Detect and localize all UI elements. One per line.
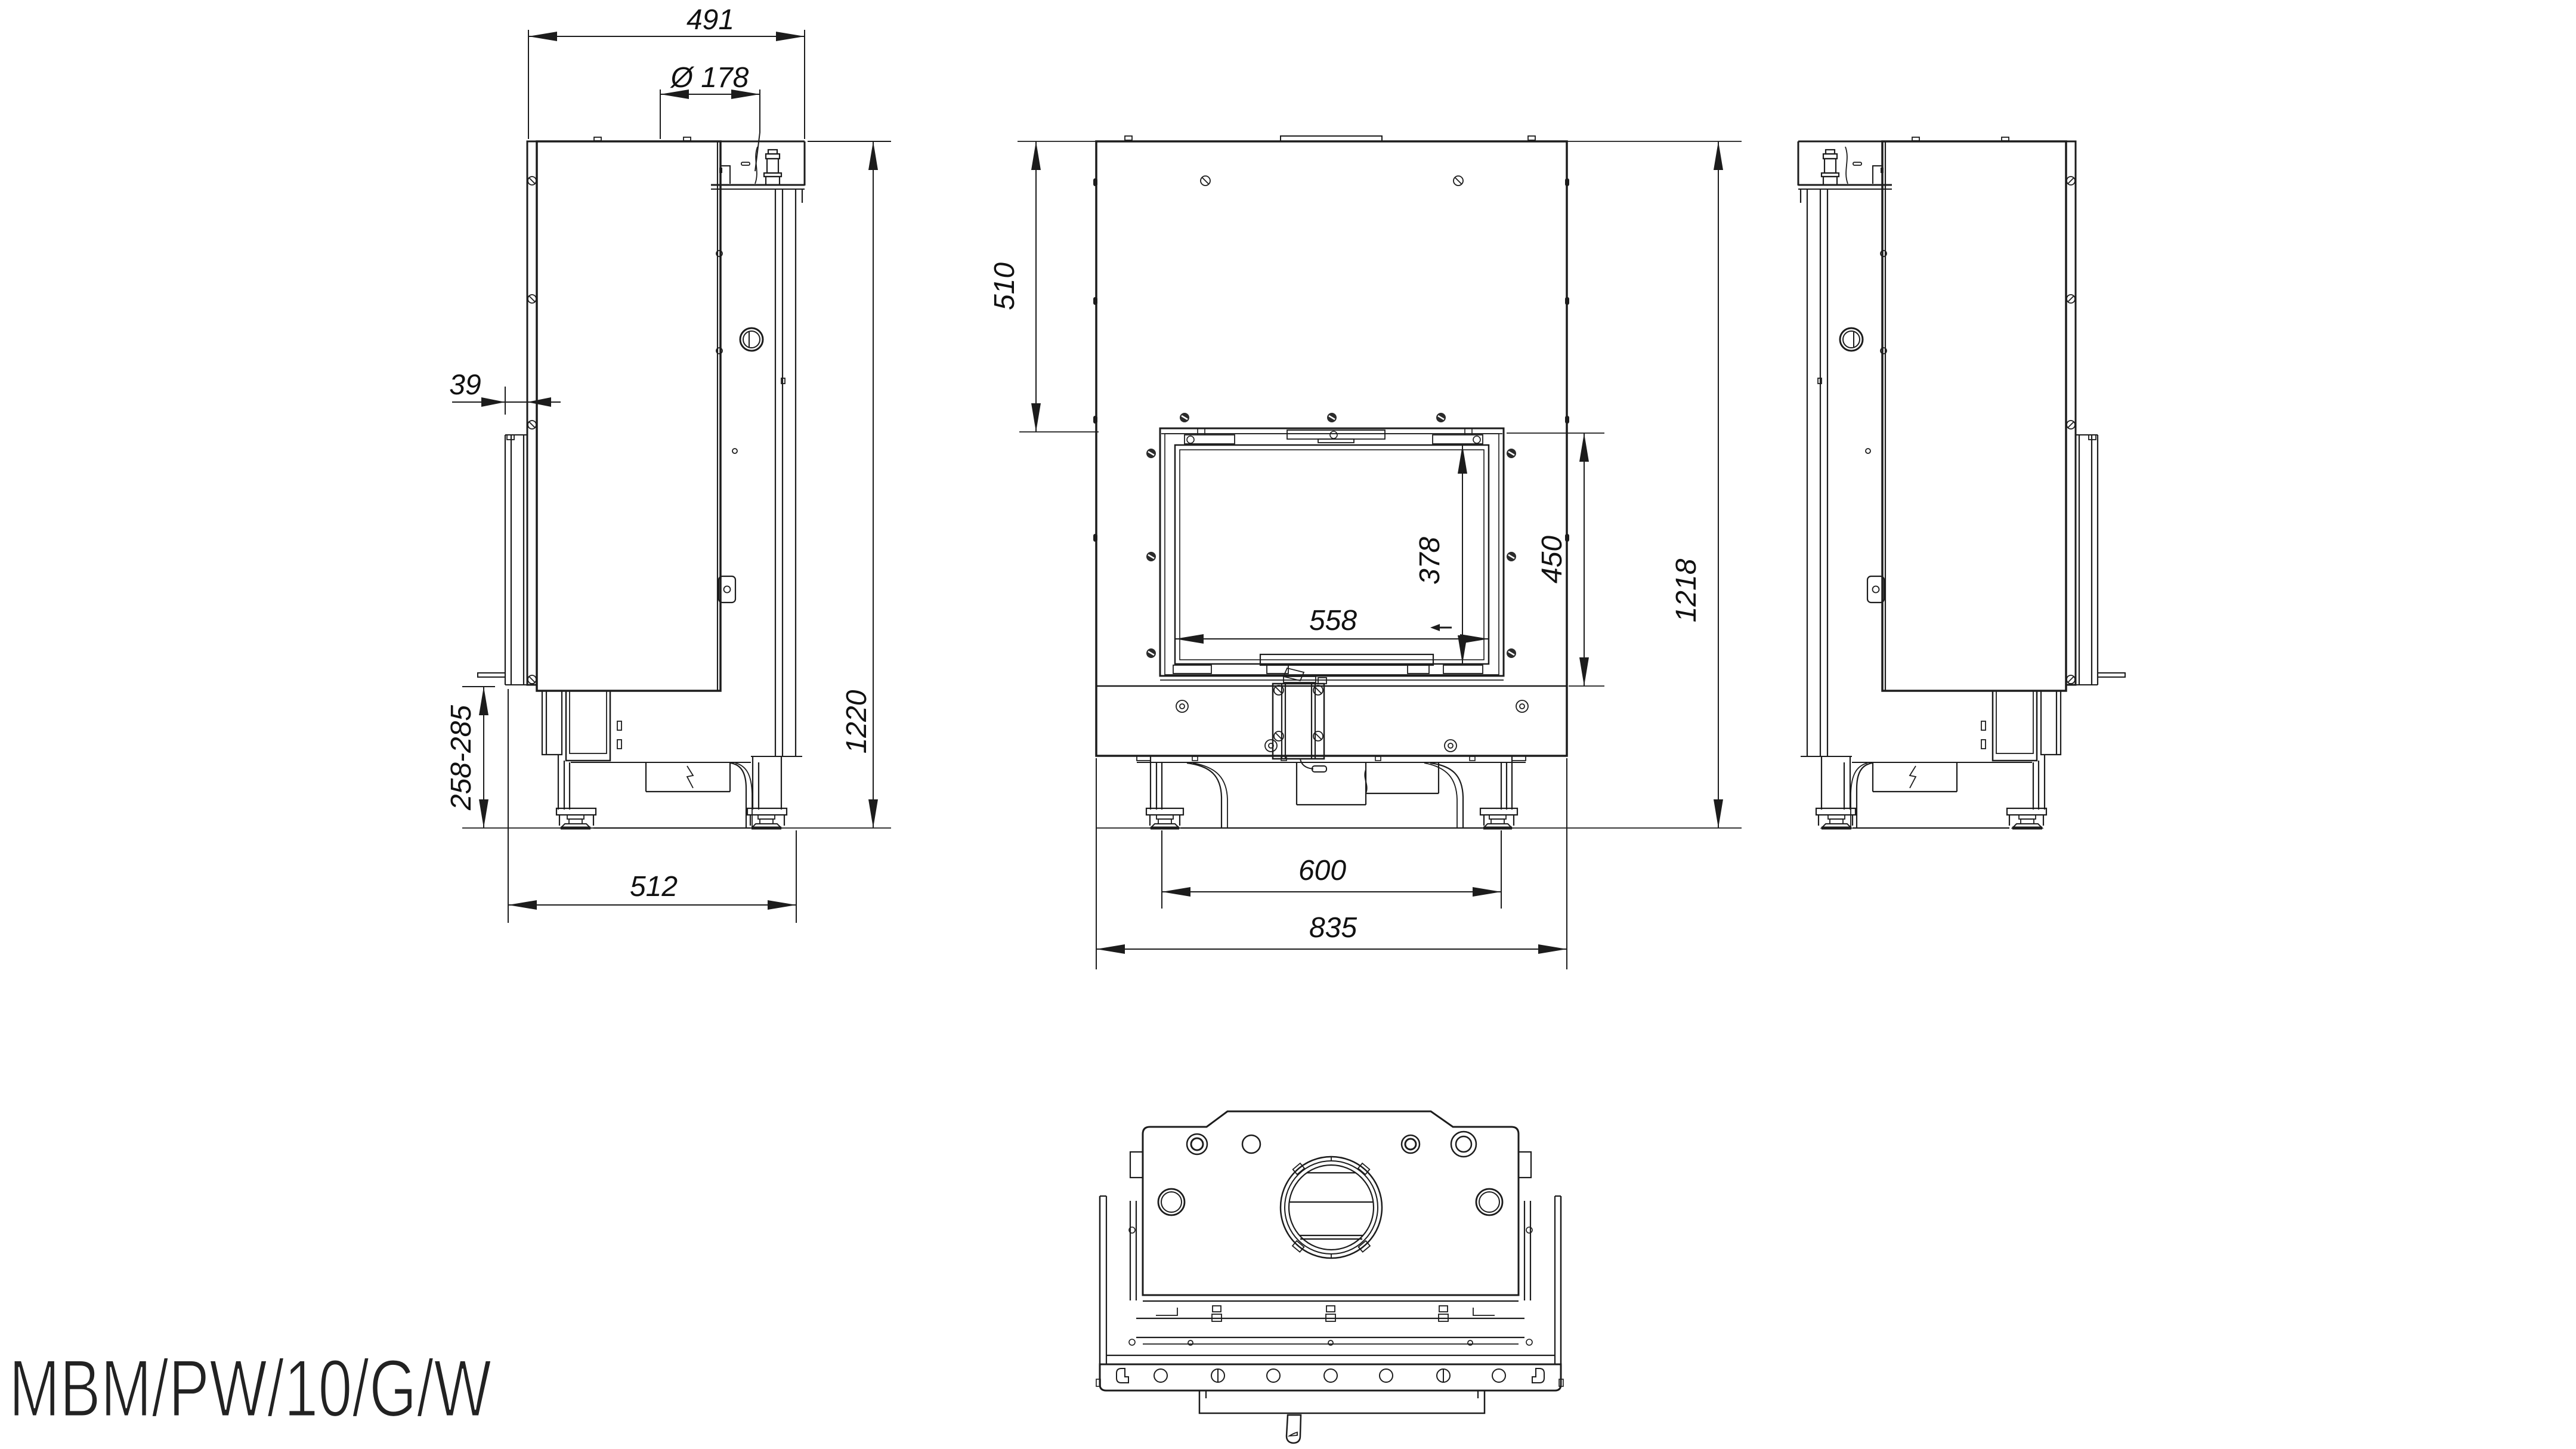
svg-text:450: 450 <box>1536 536 1568 583</box>
svg-text:510: 510 <box>989 262 1020 310</box>
svg-text:558: 558 <box>1309 605 1357 637</box>
svg-text:MBM/PW/10/G/W: MBM/PW/10/G/W <box>9 1343 491 1433</box>
svg-text:258-285: 258-285 <box>446 705 477 811</box>
svg-text:39: 39 <box>449 369 481 401</box>
svg-text:600: 600 <box>1298 855 1346 886</box>
svg-text:491: 491 <box>686 4 734 36</box>
svg-text:1218: 1218 <box>1671 558 1702 622</box>
svg-text:378: 378 <box>1414 537 1446 585</box>
svg-text:835: 835 <box>1309 912 1357 944</box>
svg-text:1220: 1220 <box>841 690 873 753</box>
svg-text:Ø 178: Ø 178 <box>670 62 749 94</box>
svg-text:512: 512 <box>630 871 678 903</box>
